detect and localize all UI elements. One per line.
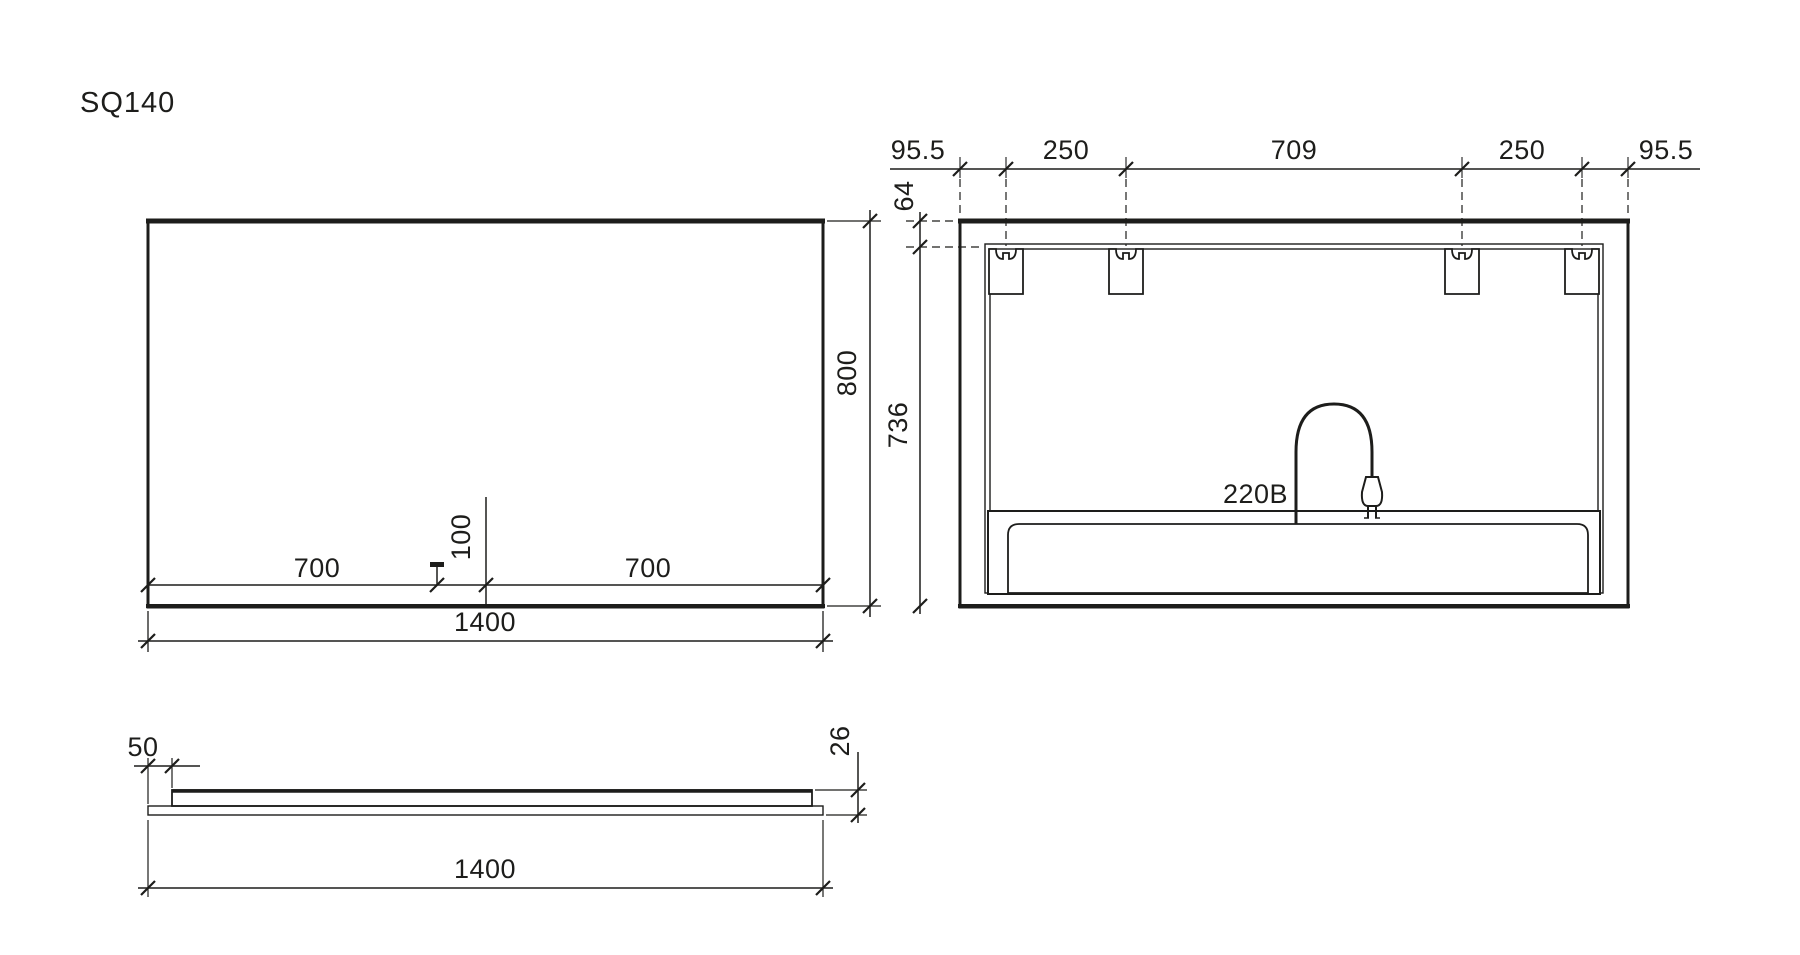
front-dim-width-label: 1400	[454, 607, 516, 637]
power-voltage-label: 220B	[1223, 479, 1288, 509]
rear-dim-spacing-right: 250	[1499, 135, 1546, 165]
side-dim-inset-label: 50	[127, 732, 158, 762]
rear-dim-spacing-left: 250	[1043, 135, 1090, 165]
front-dim-right-half: 700	[625, 553, 672, 583]
bracket-4	[1565, 249, 1599, 294]
bracket-1	[989, 249, 1023, 294]
technical-drawing: SQ140 700 700 100	[0, 0, 1800, 955]
rear-dim-span-center: 709	[1271, 135, 1318, 165]
rear-dim-body-height: 736	[883, 402, 913, 449]
power-cable: 220B	[1223, 404, 1382, 524]
front-dim-height: 800	[827, 210, 881, 617]
front-dim-width: 1400	[138, 607, 833, 652]
rear-view: 220B 95.5 250 709 250 95	[883, 135, 1700, 614]
front-dim-height-label: 800	[832, 350, 862, 397]
drawing-title: SQ140	[80, 87, 175, 119]
rear-dim-left-chain: 64 736	[883, 180, 983, 614]
side-dim-thickness-label: 26	[825, 725, 855, 756]
bracket-3	[1445, 249, 1479, 294]
rear-dim-margin-right: 95.5	[1639, 135, 1694, 165]
side-glass-panel	[148, 806, 823, 815]
rear-dim-top-chain: 95.5 250 709 250 95.5	[890, 135, 1700, 246]
side-dim-width-label: 1400	[454, 854, 516, 884]
front-view: 700 700 100 800 1400	[138, 210, 881, 652]
side-view: 50 26 1400	[127, 725, 867, 897]
mounting-brackets	[989, 249, 1599, 294]
touch-sensor-mark	[430, 562, 444, 567]
side-dim-inset: 50	[127, 732, 200, 804]
front-dim-sensor-offset: 100	[446, 514, 476, 561]
bracket-2	[1109, 249, 1143, 294]
drawing-sheet: SQ140 700 700 100	[0, 0, 1800, 955]
front-sensor-dim: 100	[430, 497, 486, 606]
rear-dim-top-offset: 64	[889, 180, 919, 211]
cable-curve	[1296, 404, 1372, 524]
front-dim-left-half: 700	[294, 553, 341, 583]
plug-icon	[1362, 477, 1382, 506]
side-dim-width: 1400	[138, 820, 833, 897]
rear-dim-margin-left: 95.5	[891, 135, 946, 165]
led-housing-inner	[1008, 524, 1588, 593]
